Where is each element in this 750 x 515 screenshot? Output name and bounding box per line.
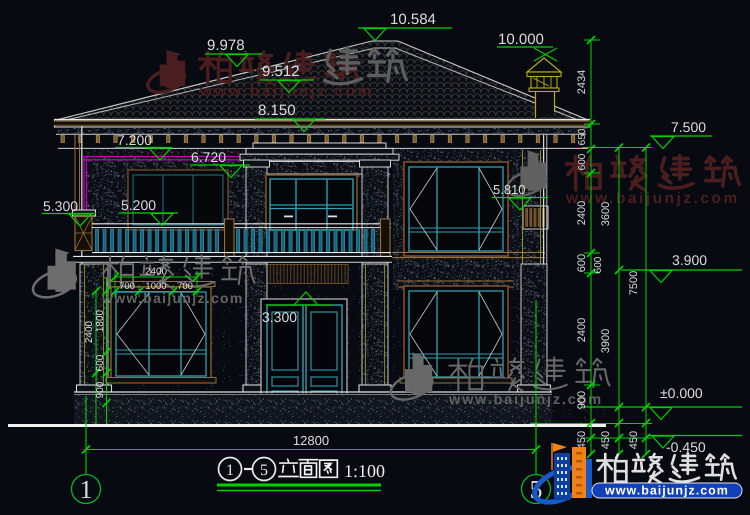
svg-text:7.200: 7.200 [117, 132, 152, 148]
svg-text:1800: 1800 [95, 309, 106, 332]
svg-text:3.300: 3.300 [262, 309, 297, 325]
svg-text:3600: 3600 [600, 202, 612, 226]
svg-text:700: 700 [119, 281, 135, 292]
svg-text:5: 5 [260, 462, 268, 479]
svg-text:450: 450 [576, 431, 588, 449]
svg-text:700: 700 [177, 281, 193, 292]
svg-text:2400: 2400 [576, 201, 588, 225]
svg-text:10.000: 10.000 [498, 31, 544, 48]
svg-text:6.720: 6.720 [191, 149, 226, 165]
svg-text:450: 450 [628, 431, 640, 449]
svg-text:1: 1 [80, 475, 93, 504]
svg-text:900: 900 [95, 381, 106, 398]
svg-text:600: 600 [95, 354, 106, 371]
svg-text:10.584: 10.584 [390, 11, 436, 28]
svg-text:3900: 3900 [600, 329, 612, 353]
svg-text:9.978: 9.978 [207, 37, 245, 54]
svg-text:2434: 2434 [576, 70, 588, 94]
svg-text:-0.450: -0.450 [666, 439, 706, 455]
svg-text:450: 450 [600, 431, 612, 449]
svg-text:5.300: 5.300 [43, 198, 78, 214]
svg-text:www.baijunjz.com: www.baijunjz.com [199, 83, 374, 100]
svg-text:8.150: 8.150 [258, 102, 296, 119]
svg-text:7.500: 7.500 [671, 119, 706, 135]
svg-text:5.200: 5.200 [121, 197, 156, 213]
svg-text:www.baijunjz.com: www.baijunjz.com [604, 484, 729, 498]
svg-text:2400: 2400 [84, 320, 95, 343]
svg-text:2400: 2400 [576, 318, 588, 342]
svg-text:600: 600 [576, 254, 588, 272]
svg-text:1: 1 [226, 462, 234, 479]
svg-text:650: 650 [577, 128, 588, 145]
svg-text:900: 900 [576, 391, 588, 409]
svg-text:9.512: 9.512 [262, 63, 300, 80]
svg-text:2400: 2400 [145, 267, 168, 278]
svg-text:7500: 7500 [628, 271, 640, 295]
svg-text:3.900: 3.900 [672, 252, 707, 268]
svg-text:600: 600 [577, 153, 588, 170]
svg-text:12800: 12800 [293, 433, 329, 448]
svg-text:1:100: 1:100 [344, 461, 385, 481]
svg-text:600: 600 [593, 256, 604, 273]
svg-text:5.810: 5.810 [493, 182, 526, 197]
svg-text:1000: 1000 [145, 281, 166, 292]
svg-text:±0.000: ±0.000 [660, 385, 703, 401]
